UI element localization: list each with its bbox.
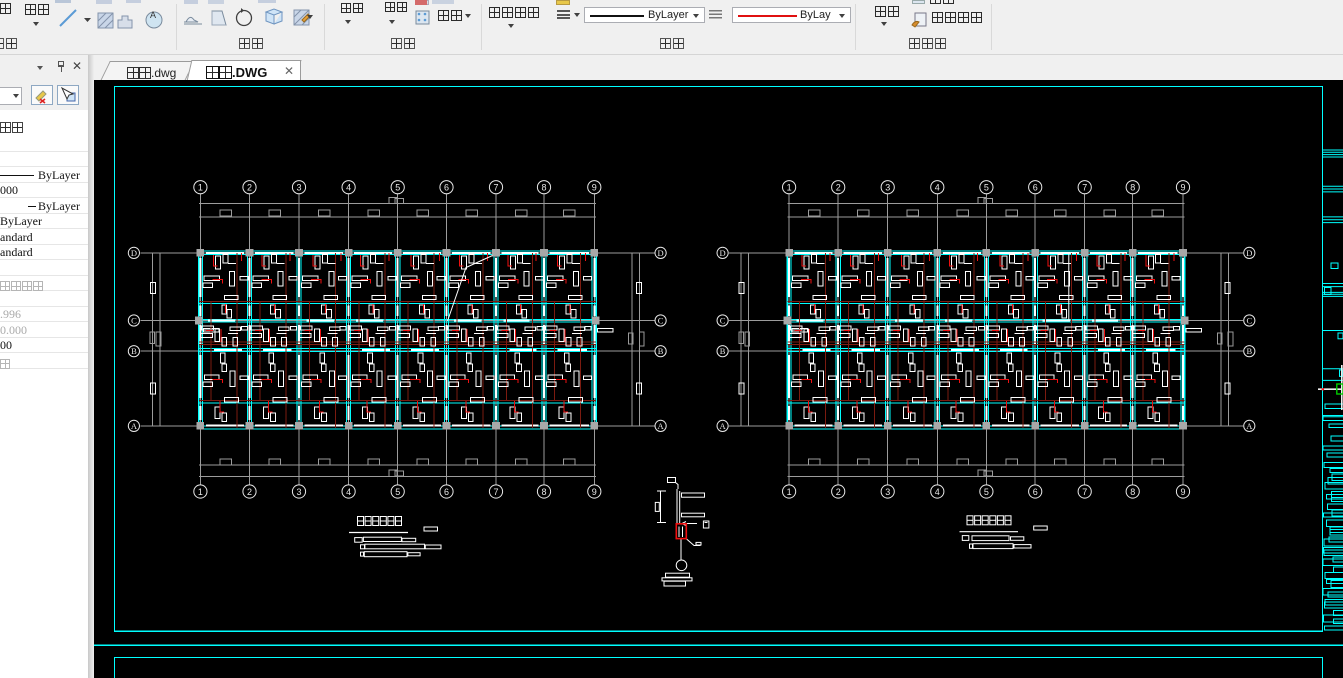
svg-text:C: C — [131, 316, 137, 326]
svg-text:2: 2 — [247, 183, 252, 193]
svg-text:8: 8 — [1130, 487, 1135, 497]
svg-text:A: A — [658, 421, 665, 431]
svg-text:2: 2 — [836, 487, 841, 497]
svg-text:1: 1 — [787, 183, 792, 193]
svg-text:9: 9 — [592, 487, 597, 497]
svg-text:9: 9 — [592, 183, 597, 193]
svg-text:8: 8 — [541, 183, 546, 193]
svg-text:B: B — [131, 346, 137, 356]
svg-text:9: 9 — [1180, 487, 1185, 497]
svg-text:4: 4 — [935, 183, 940, 193]
svg-text:A: A — [131, 421, 138, 431]
svg-text:A: A — [1246, 421, 1253, 431]
svg-text:5: 5 — [984, 487, 989, 497]
svg-text:D: D — [720, 248, 726, 258]
svg-text:2: 2 — [836, 183, 841, 193]
svg-text:3: 3 — [296, 487, 301, 497]
svg-text:C: C — [720, 316, 726, 326]
svg-text:3: 3 — [885, 487, 890, 497]
svg-text:1: 1 — [198, 487, 203, 497]
svg-text:1: 1 — [787, 487, 792, 497]
svg-text:4: 4 — [346, 487, 351, 497]
svg-text:D: D — [1246, 248, 1252, 258]
svg-text:4: 4 — [346, 183, 351, 193]
svg-text:5: 5 — [984, 183, 989, 193]
svg-text:7: 7 — [1082, 487, 1087, 497]
svg-text:7: 7 — [493, 487, 498, 497]
svg-text:6: 6 — [1033, 183, 1038, 193]
svg-text:C: C — [1246, 316, 1252, 326]
svg-text:B: B — [658, 346, 664, 356]
svg-text:6: 6 — [1033, 487, 1038, 497]
svg-text:9: 9 — [1180, 183, 1185, 193]
svg-text:6: 6 — [444, 183, 449, 193]
svg-text:5: 5 — [395, 487, 400, 497]
svg-text:B: B — [1246, 346, 1252, 356]
svg-text:B: B — [720, 346, 726, 356]
svg-text:3: 3 — [885, 183, 890, 193]
svg-text:5: 5 — [395, 183, 400, 193]
svg-text:7: 7 — [493, 183, 498, 193]
svg-text:8: 8 — [1130, 183, 1135, 193]
svg-text:3: 3 — [296, 183, 301, 193]
svg-text:A: A — [720, 421, 727, 431]
svg-text:C: C — [658, 316, 664, 326]
svg-text:4: 4 — [935, 487, 940, 497]
svg-text:A: A — [150, 10, 156, 20]
svg-text:8: 8 — [541, 487, 546, 497]
svg-text:7: 7 — [1082, 183, 1087, 193]
svg-text:1: 1 — [198, 183, 203, 193]
svg-text:6: 6 — [444, 487, 449, 497]
svg-text:2: 2 — [247, 487, 252, 497]
svg-text:D: D — [131, 248, 137, 258]
svg-text:D: D — [658, 248, 664, 258]
